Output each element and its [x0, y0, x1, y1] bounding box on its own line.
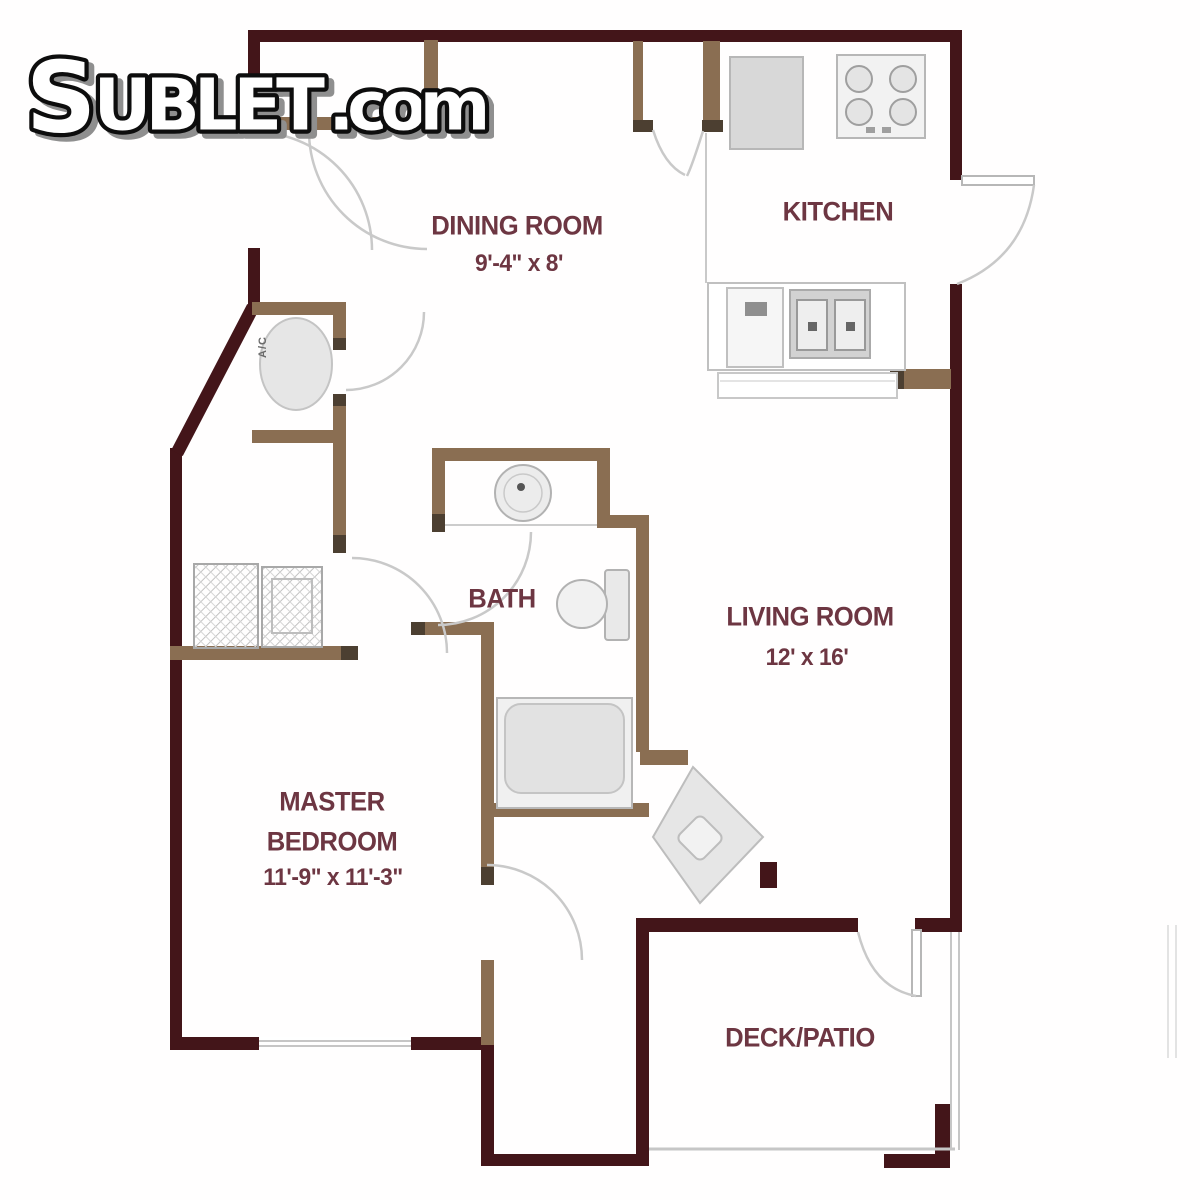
deck-door-arc: [858, 932, 916, 996]
master-bedroom-door-arc: [352, 558, 447, 653]
svg-text:.com: .com: [329, 67, 491, 144]
logo-text: S UBLET .com: [26, 41, 490, 144]
bath-label: BATH: [468, 584, 535, 615]
water-heater-icon: [260, 318, 332, 410]
master-bedroom-window: [259, 1037, 411, 1050]
kitchen-entry-door-arc-left: [653, 130, 685, 175]
entry-door-arc: [254, 132, 372, 250]
ac-unit-label: A/C: [257, 336, 269, 358]
master-bedroom-label-line1: MASTER: [279, 787, 384, 818]
toilet-icon: [557, 570, 629, 640]
living-room-label: LIVING ROOM: [726, 602, 893, 633]
dining-room-label: DINING ROOM: [431, 211, 602, 242]
kitchen-label: KITCHEN: [783, 197, 894, 228]
closet-door-arc: [487, 865, 582, 960]
deck-door-panel: [912, 930, 921, 996]
refrigerator-icon: [730, 57, 803, 149]
master-bedroom-dims: 11'-9" x 11'-3": [263, 864, 402, 892]
deck-patio-label: DECK/PATIO: [725, 1023, 875, 1054]
foyer-closet-door-arc: [309, 131, 427, 249]
floor-plan-page: DINING ROOM 9'-4" x 8' KITCHEN BATH LIVI…: [0, 0, 1200, 1200]
sublet-logo: S UBLET .com S UBLET .com: [24, 40, 494, 144]
kitchen-entry-door-arc-right: [687, 131, 703, 176]
master-bedroom-label-line2: BEDROOM: [267, 827, 398, 858]
kitchen-side-door-panel: [962, 176, 1034, 185]
kitchen-side-door-arc: [957, 185, 1034, 284]
bathroom-sink-icon: [445, 465, 597, 525]
washer-dryer-icon: [194, 564, 322, 648]
bathtub-icon: [497, 698, 632, 808]
utility-closet-door-arc: [346, 312, 424, 390]
living-room-dims: 12' x 16': [766, 644, 849, 672]
dining-room-dims: 9'-4" x 8': [475, 250, 563, 278]
interior-walls: [170, 40, 951, 1045]
dishwasher-icon: [727, 288, 783, 367]
kitchen-sink-icon: [790, 290, 870, 358]
svg-text:S: S: [26, 41, 96, 144]
svg-text:UBLET: UBLET: [94, 64, 326, 144]
diagonal-wall: [177, 307, 253, 453]
stove-icon: [837, 55, 925, 138]
floor-plan: [0, 0, 1200, 1200]
fireplace-icon: [653, 767, 763, 903]
